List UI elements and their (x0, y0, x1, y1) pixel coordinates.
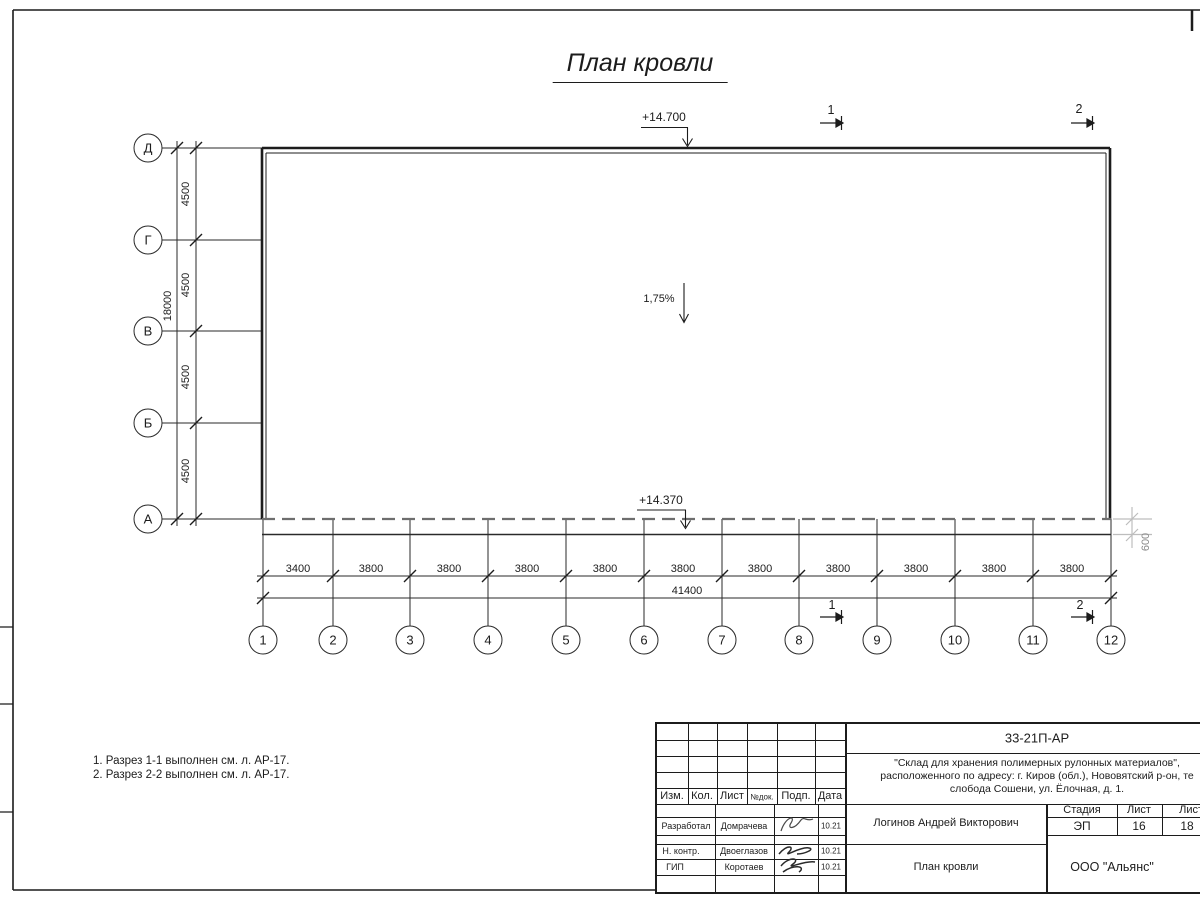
dim-bottom-7: 3800 (748, 563, 772, 575)
company-name: ООО "Альянс" (1070, 860, 1154, 874)
axis-bubble-3: 3 (396, 626, 425, 655)
axis-bubble-2: 2 (319, 626, 348, 655)
section-mark-arrows (820, 116, 1094, 624)
title-block: 33-21П-АР "Склад для хранения полимерных… (655, 722, 1200, 894)
axis-bubble-12: 12 (1097, 626, 1126, 655)
drawing-notes: 1. Разрез 1-1 выполнен см. л. АР-17. 2. … (93, 755, 290, 782)
tb-line (815, 724, 816, 804)
tb-sheet-value: 16 (1132, 819, 1145, 833)
tb-header-kol: Кол. (691, 790, 713, 802)
axis-label: 4 (484, 633, 491, 648)
tb-header-data: Дата (818, 790, 842, 802)
dim-bottom-4: 3800 (515, 563, 539, 575)
tb-doc-title: План кровли (914, 861, 979, 873)
section-2-bottom-label: 2 (1077, 598, 1084, 612)
tb-stage-value: ЭП (1073, 819, 1090, 833)
axis-label: 3 (406, 633, 413, 648)
tb-line (688, 724, 689, 804)
letter-axis-lines (161, 148, 262, 519)
dim-bottom-10: 3800 (982, 563, 1006, 575)
tb-header-izm: Изм. (660, 790, 684, 802)
tb-date-gip: 10.21 (821, 863, 841, 872)
tb-date-developer: 10.21 (821, 822, 841, 831)
dim-bottom-5: 3800 (593, 563, 617, 575)
tb-role-ncontrol: Н. контр. (662, 846, 699, 856)
axis-label: В (144, 324, 153, 339)
dim-bottom-6: 3800 (671, 563, 695, 575)
tb-line (715, 804, 716, 892)
axis-bubble-11: 11 (1019, 626, 1048, 655)
axis-bubble-7: 7 (708, 626, 737, 655)
dim-bottom-2: 3800 (359, 563, 383, 575)
axis-label: Г (144, 233, 151, 248)
tb-line (657, 772, 846, 773)
project-name-line2: расположенного по адресу: г. Киров (обл.… (880, 770, 1193, 782)
axis-label: 10 (948, 633, 962, 648)
axis-label: Д (144, 141, 153, 156)
tb-line (1047, 817, 1200, 818)
elevation-top: +14.700 (642, 110, 686, 124)
axis-bubble-5: 5 (552, 626, 581, 655)
axis-label: 9 (873, 633, 880, 648)
tb-header-podp: Подп. (781, 790, 810, 802)
elevation-leaders (637, 128, 693, 529)
tb-name-ncontrol: Двоеглазов (720, 846, 768, 856)
tb-date-ncontrol: 10.21 (821, 847, 841, 856)
dim-left-4: 4500 (180, 459, 192, 483)
axis-bubble-9: 9 (863, 626, 892, 655)
axis-label: 1 (259, 633, 266, 648)
project-name-line1: "Склад для хранения полимерных рулонных … (894, 757, 1180, 769)
tb-line (657, 788, 846, 789)
section-2-top-label: 2 (1076, 102, 1083, 116)
axis-label: Б (144, 416, 153, 431)
axis-bubble-4: 4 (474, 626, 503, 655)
tb-line (846, 753, 1200, 754)
axis-label: 8 (795, 633, 802, 648)
tb-role-developer: Разработал (662, 821, 711, 831)
axis-bubble-d: Д (134, 134, 163, 163)
dim-left-1: 4500 (180, 182, 192, 206)
dim-bottom-3: 3800 (437, 563, 461, 575)
tb-line (1046, 804, 1048, 892)
tb-stage-header: Стадия (1063, 804, 1101, 816)
tb-line (657, 756, 846, 757)
axis-bubble-6: 6 (630, 626, 659, 655)
tb-name-gip: Коротаев (725, 862, 764, 872)
dim-left-3: 4500 (180, 365, 192, 389)
tb-line (845, 724, 847, 892)
signature-developer (777, 814, 817, 836)
project-name-line3: слобода Сошени, ул. Ёлочная, д. 1. (950, 783, 1124, 795)
axis-label: 11 (1026, 633, 1040, 648)
slope-label: 1,75% (643, 293, 674, 305)
tb-header-ndok: №док. (750, 793, 773, 802)
axis-label: 7 (718, 633, 725, 648)
slope-arrow (680, 283, 689, 323)
section-1-bottom-label: 1 (829, 598, 836, 612)
dim-bottom-1: 3400 (286, 563, 310, 575)
elevation-bottom: +14.370 (639, 493, 683, 507)
roof-parapet-outline (262, 148, 1110, 519)
tb-line (777, 724, 778, 804)
signature-ncontrol-gip (775, 842, 821, 876)
tb-sheets-header: Листов (1179, 804, 1200, 816)
axis-label: 6 (640, 633, 647, 648)
document-code: 33-21П-АР (1005, 731, 1069, 746)
dim-bottom-11: 3800 (1060, 563, 1084, 575)
axis-bubble-8: 8 (785, 626, 814, 655)
axis-bubble-10: 10 (941, 626, 970, 655)
sheet-title: План кровли (553, 49, 728, 83)
tb-header-list: Лист (720, 790, 744, 802)
tb-line (747, 724, 748, 804)
section-1-top-label: 1 (828, 103, 835, 117)
note-line: 1. Разрез 1-1 выполнен см. л. АР-17. (93, 755, 290, 769)
tb-line (657, 804, 1200, 805)
tb-line (1047, 835, 1200, 836)
axis-bubble-a: А (134, 505, 163, 534)
dim-overhang: 600 (1140, 533, 1152, 551)
dim-bottom-total: 41400 (672, 585, 703, 597)
drawing-sheet: План кровли Д Г В Б А 1 2 3 4 5 6 7 8 9 … (0, 0, 1200, 900)
tb-line (1117, 804, 1118, 835)
dim-left-2: 4500 (180, 273, 192, 297)
axis-bubble-g: Г (134, 226, 163, 255)
axis-label: 2 (329, 633, 336, 648)
tb-name-developer: Домрачева (721, 821, 768, 831)
tb-line (717, 724, 718, 804)
note-line: 2. Разрез 2-2 выполнен см. л. АР-17. (93, 769, 290, 783)
tb-sheet-header: Лист (1127, 804, 1151, 816)
axis-bubble-1: 1 (249, 626, 278, 655)
dim-bottom-8: 3800 (826, 563, 850, 575)
axis-bubble-b: Б (134, 409, 163, 438)
axis-bubble-v: В (134, 317, 163, 346)
axis-label: А (144, 512, 153, 527)
tb-sheets-value: 18 (1180, 819, 1193, 833)
dim-left-total: 18000 (162, 291, 174, 322)
approver-name: Логинов Андрей Викторович (873, 817, 1018, 829)
tb-line (1162, 804, 1163, 835)
axis-label: 12 (1104, 633, 1118, 648)
tb-line (657, 740, 846, 741)
axis-label: 5 (562, 633, 569, 648)
tb-role-gip: ГИП (666, 862, 684, 872)
dim-bottom-9: 3800 (904, 563, 928, 575)
